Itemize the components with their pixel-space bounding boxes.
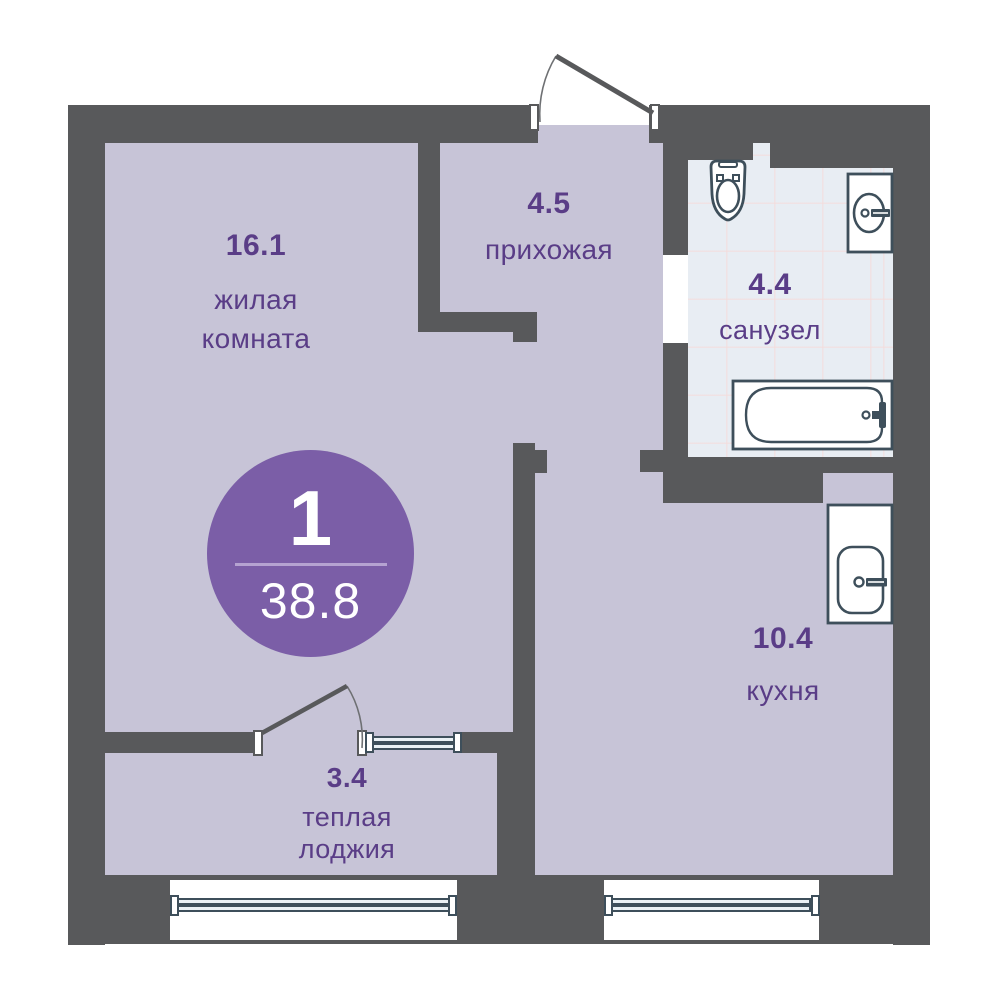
kitchen-window-cap-left xyxy=(604,895,613,916)
kitchen-window xyxy=(608,898,811,912)
hallway-area: 4.5 xyxy=(485,186,613,222)
loggia-label: 3.4 теплая лоджия xyxy=(299,760,395,865)
wall-bath-left-lower xyxy=(663,343,688,457)
entrance-jamb-left xyxy=(529,104,539,131)
wall-living-hall xyxy=(418,312,537,332)
wall-living-kitchen xyxy=(513,443,535,732)
loggia-window-cap-left xyxy=(170,895,179,916)
loggia-window xyxy=(174,898,452,912)
wall-bath-top-left xyxy=(688,143,753,160)
wall-living-hall-step xyxy=(513,332,537,342)
wall-left xyxy=(68,105,105,945)
wall-living-loggia xyxy=(105,732,257,753)
entrance-threshold xyxy=(538,125,649,143)
bathroom-name: санузел xyxy=(719,311,821,350)
apartment-badge: 1 38.8 xyxy=(207,450,414,657)
bathroom-area: 4.4 xyxy=(719,267,821,303)
loggia-area: 3.4 xyxy=(299,760,395,796)
living-room-label: 16.1 жилая комната xyxy=(202,228,311,358)
kitchen-area: 10.4 xyxy=(746,621,819,657)
loggia-name-line1: теплая xyxy=(299,801,395,833)
loggia-inner-window-cap-left xyxy=(365,732,374,753)
kitchen-name: кухня xyxy=(746,671,819,710)
wall-bath-top-right xyxy=(770,143,893,168)
wall-loggia-kitchen xyxy=(497,753,535,875)
entrance-doorway-gap xyxy=(538,105,649,125)
wall-living-right xyxy=(418,143,440,332)
wall-kitchen-stub xyxy=(535,450,547,473)
living-room-name-line1: жилая xyxy=(202,280,311,319)
living-room-name-line2: комната xyxy=(202,319,311,358)
loggia-window-cap-right xyxy=(448,895,457,916)
loggia-door-jamb-left xyxy=(253,730,263,756)
living-room-area: 16.1 xyxy=(202,228,311,264)
wall-bath-left-upper xyxy=(663,143,688,255)
wall-hall-step xyxy=(640,450,663,472)
hallway-name: прихожая xyxy=(485,230,613,269)
loggia-name-line2: лоджия xyxy=(299,833,395,865)
entrance-jamb-right xyxy=(650,104,660,131)
bathroom-label: 4.4 санузел xyxy=(719,267,821,350)
badge-rooms-count: 1 xyxy=(289,481,332,555)
wall-bath-bottom-right xyxy=(823,457,893,473)
badge-divider xyxy=(235,563,387,566)
wall-loggia-kitchen-top xyxy=(462,732,535,753)
wall-bath-bottom xyxy=(663,457,823,503)
hallway-label: 4.5 прихожая xyxy=(485,186,613,269)
loggia-inner-window xyxy=(369,736,457,750)
wall-right xyxy=(893,105,930,945)
kitchen-label: 10.4 кухня xyxy=(746,621,819,710)
kitchen-window-cap-right xyxy=(811,895,820,916)
floor-plan: 16.1 жилая комната 4.5 прихожая 4.4 сану… xyxy=(0,0,1001,1001)
wall-top xyxy=(68,105,930,143)
badge-total-area: 38.8 xyxy=(260,575,361,627)
loggia-inner-window-cap-right xyxy=(453,732,462,753)
bathroom-doorway xyxy=(663,255,688,343)
